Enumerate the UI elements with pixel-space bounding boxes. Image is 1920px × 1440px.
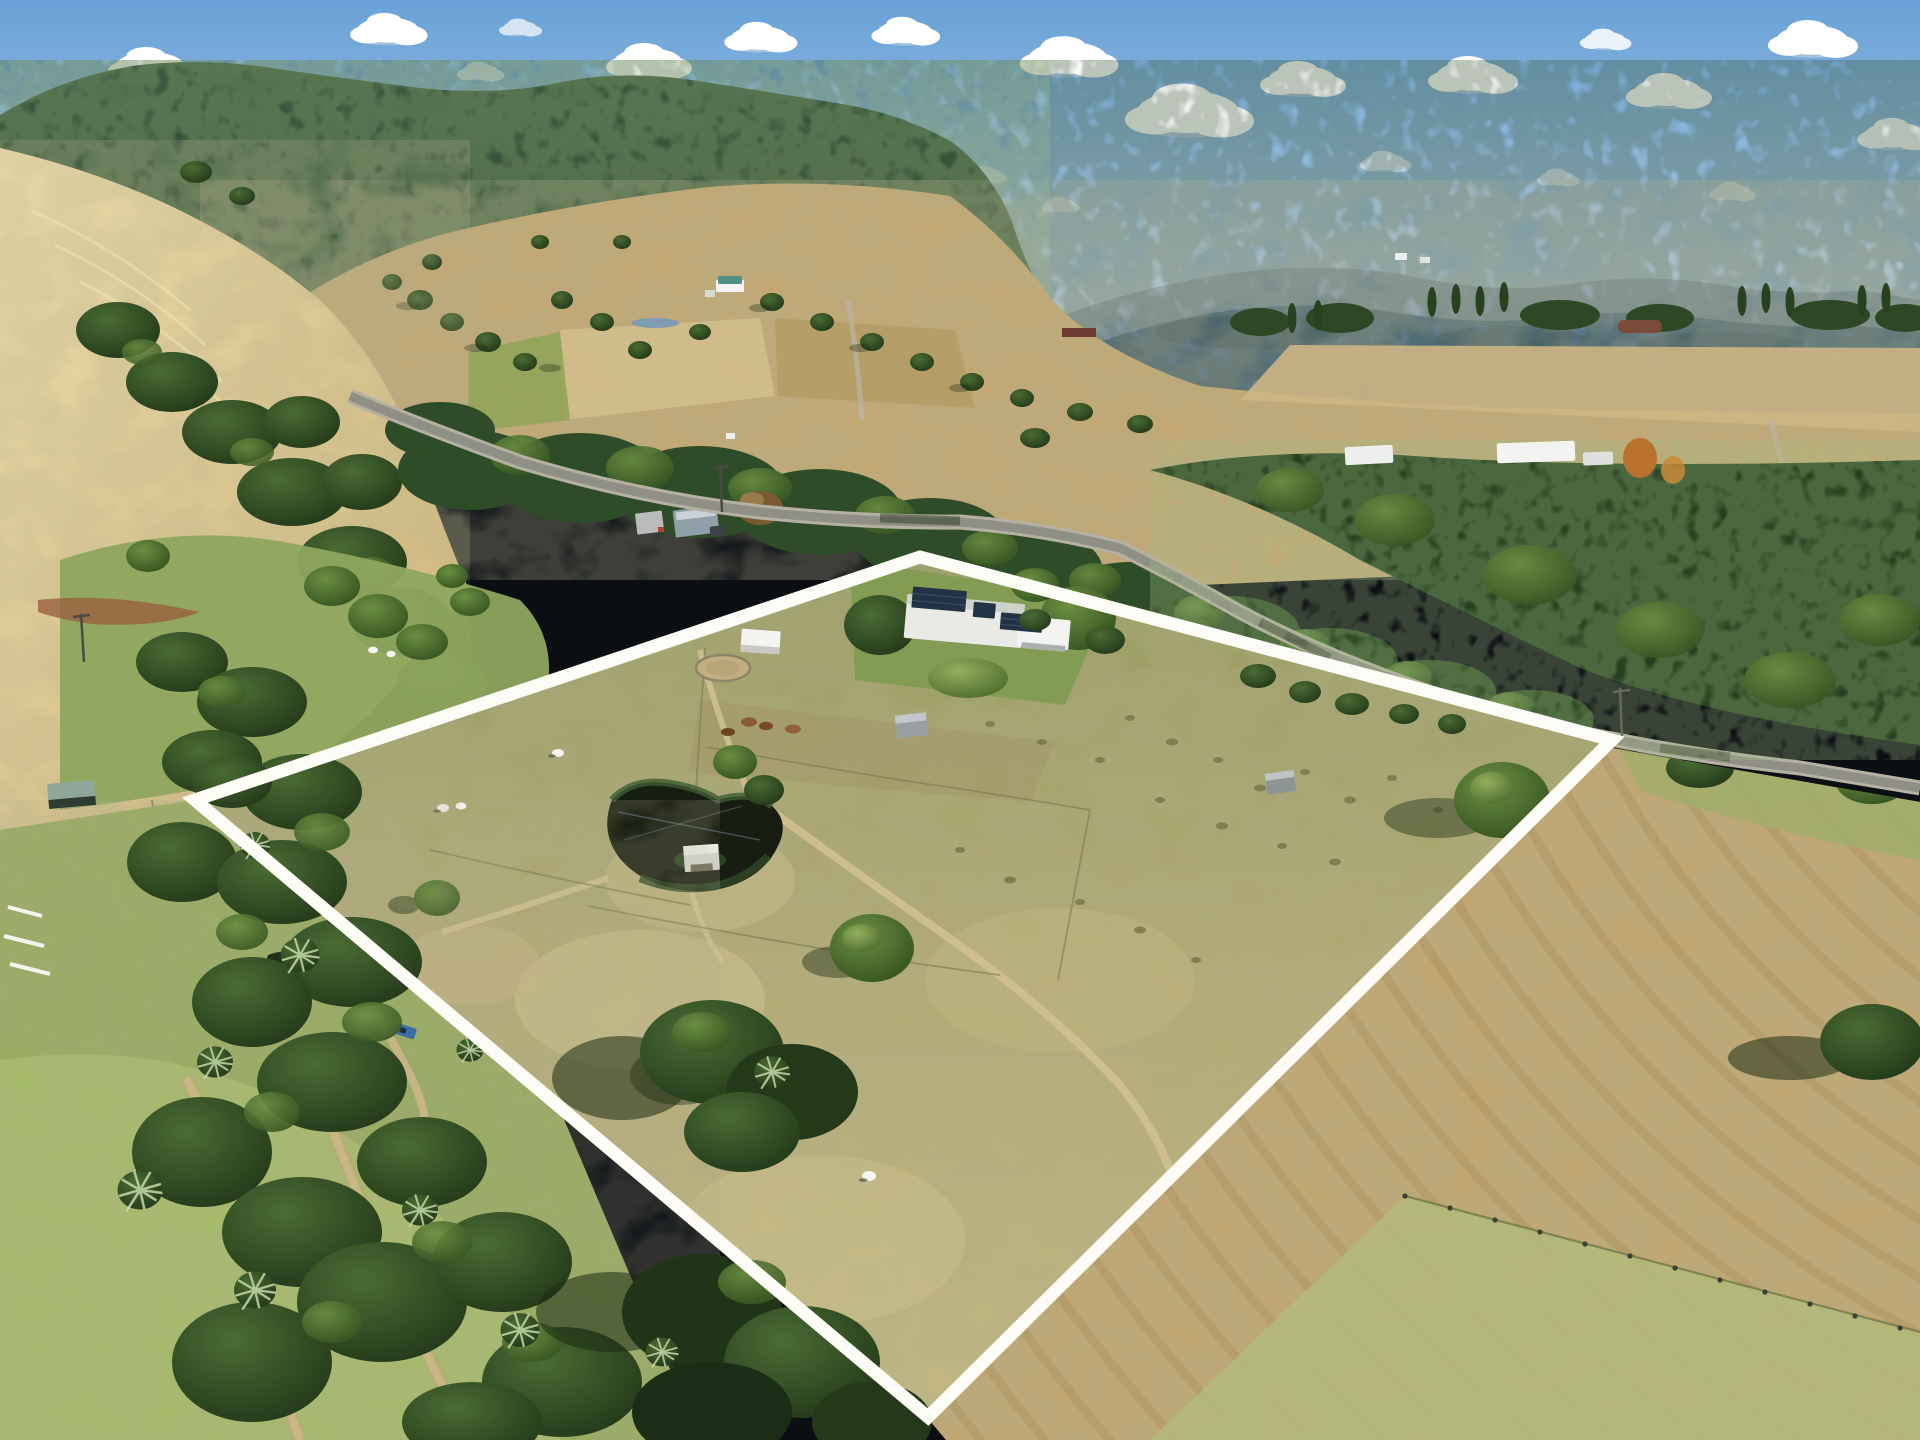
round-yard — [696, 655, 750, 681]
valley-dam — [631, 318, 679, 328]
field-shelter — [47, 780, 96, 809]
white-shed — [740, 629, 781, 655]
paddock-shed-3 — [1265, 770, 1297, 795]
paddock-shed-1 — [895, 712, 928, 738]
autumn-tree — [1623, 438, 1657, 478]
aerial-photo — [0, 0, 1920, 1440]
